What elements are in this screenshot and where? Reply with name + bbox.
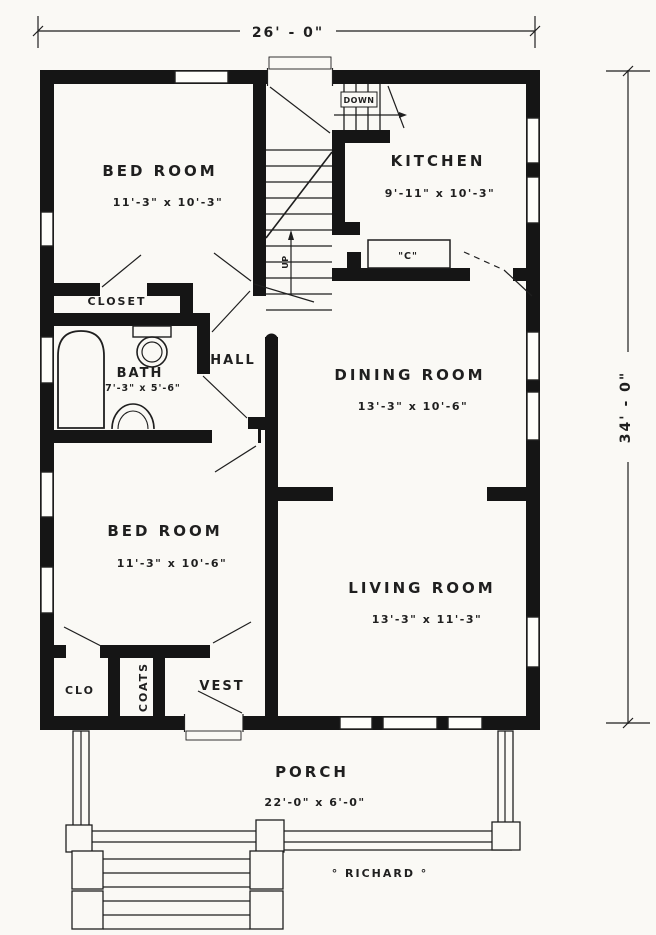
room-label-kitchen: KITCHEN [391, 152, 486, 170]
window [41, 337, 53, 383]
room-label-bedroom-bottom: BED ROOM [107, 522, 222, 540]
step-newel [72, 891, 103, 929]
plan-title: ° RICHARD ° [332, 867, 429, 880]
floor-plan-drawing: DOWN UP "C" [0, 0, 656, 935]
dimension-label-height: 34' - 0" [618, 371, 634, 443]
door-swing [215, 446, 256, 472]
front-door-opening [184, 714, 243, 732]
dimension-label-width: 26' - 0" [252, 25, 324, 41]
room-label-hall: HALL [210, 353, 256, 368]
room-label-clo: CLO [65, 684, 95, 697]
window [527, 617, 539, 667]
room-label-porch: PORCH [275, 763, 349, 781]
wall-segment [345, 222, 360, 235]
room-size-bath: 7'-3" x 5'-6" [105, 383, 181, 394]
stair-break-line [266, 152, 332, 238]
wall-segment [108, 645, 120, 716]
door-swing [64, 627, 101, 646]
stair-treads-up [266, 150, 332, 310]
window [448, 717, 482, 729]
wall-segment [153, 658, 165, 716]
sink-inner [118, 411, 148, 429]
room-size-porch: 22'-0" x 6'-0" [264, 796, 365, 809]
room-size-bedroom-top: 11'-3" x 10'-3" [113, 196, 224, 209]
room-label-vest: VEST [199, 679, 244, 694]
rear-stoop [269, 57, 331, 69]
kitchen-counter-label: "C" [398, 251, 418, 262]
bathtub [58, 331, 104, 428]
window [527, 118, 539, 163]
wall-segment [248, 417, 265, 430]
wall-segment [487, 487, 526, 501]
door-swing [212, 291, 250, 332]
floor-plan-sheet: DOWN UP "C" [0, 0, 656, 935]
room-label-bedroom-top: BED ROOM [102, 162, 217, 180]
wall-segment [332, 130, 345, 235]
window [383, 717, 437, 729]
step-newel [250, 851, 283, 889]
toilet-bowl-inner [142, 342, 162, 362]
room-label-living: LIVING ROOM [348, 579, 495, 597]
rear-door-opening [267, 68, 333, 86]
window [527, 332, 539, 380]
swing-door-dashed [464, 252, 504, 270]
dimension-top: 26' - 0" [33, 16, 540, 48]
room-size-dining: 13'-3" x 10'-6" [358, 400, 469, 413]
step-newel [72, 851, 103, 889]
room-label-coats: COATS [137, 662, 150, 712]
porch-structure [66, 731, 520, 929]
front-threshold [186, 731, 241, 740]
door-swing [388, 86, 404, 128]
porch-pier [66, 825, 92, 852]
room-label-closet: CLOSET [88, 295, 147, 308]
window [527, 177, 539, 223]
wall-segment [54, 645, 66, 658]
door-swing [102, 255, 141, 287]
room-size-bedroom-bottom: 11'-3" x 10'-6" [117, 557, 228, 570]
wall-segment [278, 487, 333, 501]
wall-segment [513, 268, 526, 281]
room-labels: BED ROOM 11'-3" x 10'-3" KITCHEN 9'-11" … [65, 152, 496, 809]
up-arrowhead [288, 230, 294, 240]
porch-post [256, 820, 284, 852]
room-label-bath: BATH [117, 366, 164, 381]
room-label-dining: DINING ROOM [334, 366, 485, 384]
stair-up-label: UP [281, 255, 290, 268]
window [340, 717, 372, 729]
stair-down-label: DOWN [344, 96, 375, 105]
porch-steps [72, 851, 283, 929]
wall-segment [54, 313, 210, 326]
bedroom-door-opening [212, 429, 258, 444]
room-size-kitchen: 9'-11" x 10'-3" [385, 187, 496, 200]
wall-segment [332, 268, 470, 281]
wall-segment [253, 84, 266, 296]
window [41, 212, 53, 246]
wall-segment [40, 70, 54, 730]
wall-segment [197, 326, 210, 374]
door-swing [203, 376, 247, 418]
porch-pier [492, 822, 520, 850]
window [41, 472, 53, 517]
door-swing [198, 691, 242, 713]
window [41, 567, 53, 613]
window [527, 392, 539, 440]
door-swing [214, 253, 251, 281]
dimension-right: 34' - 0" [606, 66, 650, 728]
window [175, 71, 228, 83]
toilet-tank [133, 326, 171, 337]
door-swing [213, 622, 251, 643]
room-size-living: 13'-3" x 11'-3" [372, 613, 483, 626]
step-newel [250, 891, 283, 929]
chimney-flue [347, 252, 361, 268]
wall-segment [265, 337, 278, 716]
wall-end-cap [265, 334, 278, 347]
door-swing [270, 87, 330, 133]
